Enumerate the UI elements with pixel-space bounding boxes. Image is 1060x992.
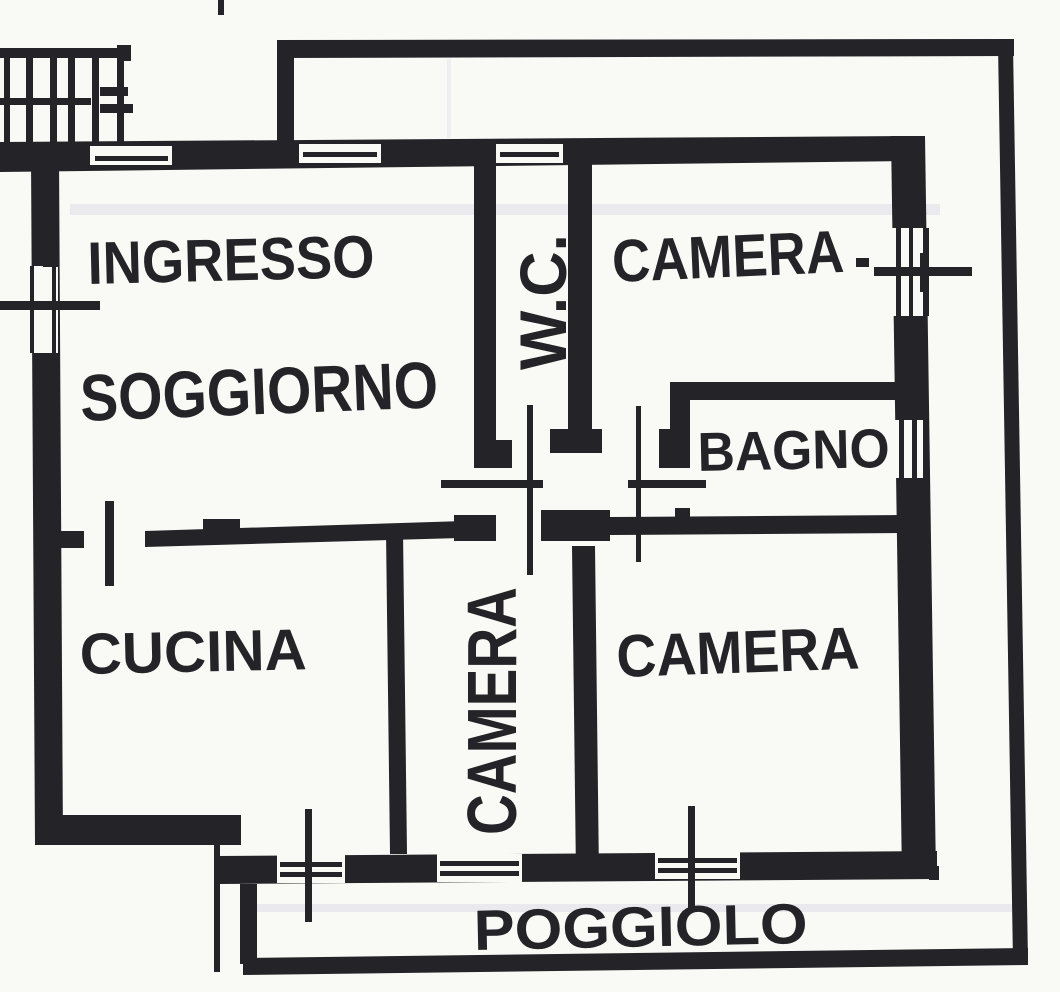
svg-text:INGRESSO: INGRESSO <box>87 223 376 297</box>
svg-text:CUCINA: CUCINA <box>79 617 307 687</box>
svg-text:BAGNO: BAGNO <box>697 417 890 483</box>
svg-text:CAMERA: CAMERA <box>615 615 860 690</box>
svg-text:CAMERA: CAMERA <box>453 587 531 835</box>
svg-text:POGGIOLO: POGGIOLO <box>473 892 808 963</box>
svg-text:SOGGIORNO: SOGGIORNO <box>79 347 440 435</box>
svg-text:CAMERA: CAMERA <box>611 218 846 295</box>
svg-text:W.C.: W.C. <box>506 234 580 370</box>
